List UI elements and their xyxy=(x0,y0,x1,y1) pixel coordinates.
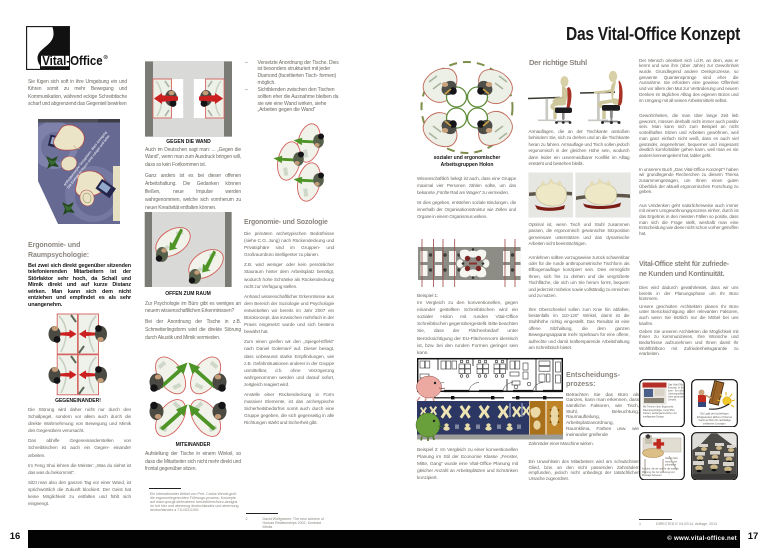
svg-text:umfassene Lösungen.: umfassene Lösungen. xyxy=(702,422,726,425)
svg-text:Vital-Office: Vital-Office xyxy=(42,53,102,68)
svg-text:intelligentes Design.: intelligentes Design. xyxy=(643,415,665,418)
svg-text:Umwelt.: Umwelt. xyxy=(668,398,677,401)
svg-text:zufriedene: zufriedene xyxy=(665,463,677,466)
svg-text:®: ® xyxy=(104,54,109,61)
svg-text:Montage betreuen.: Montage betreuen. xyxy=(642,474,662,477)
